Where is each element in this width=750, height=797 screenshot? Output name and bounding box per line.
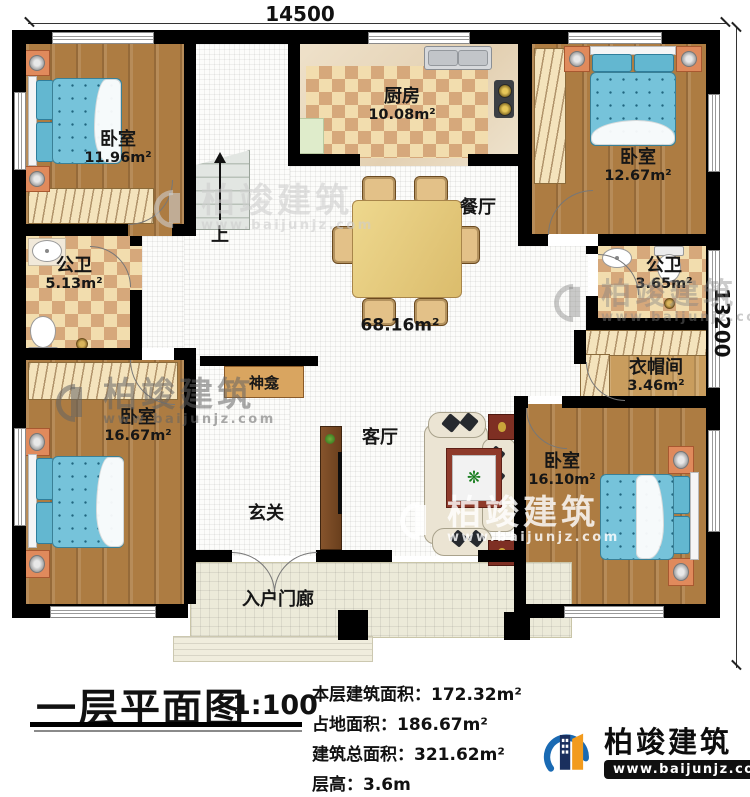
bed-tr-pillow: [634, 54, 674, 72]
dimension-tick: [720, 17, 730, 27]
stat-value: 172.32m²: [431, 685, 522, 705]
stat-line: 建筑总面积：321.62m²: [312, 740, 522, 770]
wall-segment: [574, 330, 586, 364]
wall-segment: [514, 396, 526, 604]
stat-label: 层高：: [312, 775, 363, 795]
bed-bl-sheet: [96, 457, 124, 547]
stat-value: 3.6m: [363, 775, 411, 795]
nightstand: [24, 166, 50, 192]
coffee-table: ❋: [446, 448, 502, 508]
side-table: [488, 414, 516, 440]
nightstand: [24, 50, 50, 76]
stove-burner: [498, 102, 512, 116]
wall-segment: [562, 396, 706, 408]
wall-segment: [532, 234, 548, 246]
wall-segment: [130, 290, 142, 360]
floor-drain: [664, 298, 675, 309]
wall-segment: [26, 348, 130, 360]
cloakroom-shelves-top: [580, 330, 708, 356]
wall-segment: [172, 224, 196, 236]
dimension-line-top: [28, 23, 726, 24]
window: [14, 92, 26, 170]
kitchen-sink: [424, 46, 492, 70]
nightstand: [24, 550, 50, 578]
wall-segment: [518, 44, 532, 246]
window: [568, 32, 662, 44]
stat-label: 占地面积：: [312, 715, 397, 735]
stove-burner: [498, 84, 512, 98]
stat-value: 186.67m²: [397, 715, 488, 735]
partition-plant: [325, 434, 335, 444]
plant-icon: ❋: [467, 468, 481, 488]
room-label-bath-right: 公卫 3.65m²: [635, 256, 692, 292]
wall-segment: [184, 44, 196, 236]
wall-segment: [598, 234, 706, 246]
drawing-scale: 1:100: [232, 690, 318, 721]
room-label-cloakroom: 衣帽间 3.46m²: [627, 358, 684, 394]
wall-segment: [26, 224, 128, 236]
wall-segment: [316, 550, 392, 562]
wall-segment: [288, 154, 360, 166]
bed-br-headboard: [690, 472, 699, 560]
stat-line: 层高：3.6m: [312, 770, 522, 797]
room-label-dining: 餐厅: [460, 198, 496, 218]
window: [564, 606, 664, 618]
stat-line: 本层建筑面积：172.32m²: [312, 680, 522, 710]
window: [52, 32, 154, 44]
room-label-bedroom-bl: 卧室 16.67m²: [104, 408, 171, 444]
brand-logo-icon: [538, 726, 596, 780]
brand-logo: 柏竣建筑 www.baijunjz.com: [538, 726, 750, 780]
entry-door-arc-right: [274, 552, 317, 593]
stairs-arrow-head: [214, 152, 226, 163]
room-label-bath-left: 公卫 5.13m²: [45, 256, 102, 292]
room-label-living: 客厅: [362, 428, 398, 448]
tv-screen: [338, 452, 342, 514]
hall-area-label: 68.16m²: [361, 316, 440, 335]
nightstand: [676, 46, 702, 72]
dimension-tick: [24, 17, 34, 27]
room-label-porch: 入户门廊: [242, 590, 314, 610]
porch-column: [338, 610, 368, 640]
dimension-right-value: 13200: [710, 288, 734, 352]
shrine-label: 神龛: [249, 372, 279, 393]
stat-value: 321.62m²: [414, 745, 505, 765]
window: [708, 94, 720, 172]
nightstand: [564, 46, 590, 72]
room-label-bedroom-tr: 卧室 12.67m²: [604, 148, 671, 184]
title-block: 一层平面图 1:100 本层建筑面积：172.32m² 占地面积：186.67m…: [0, 668, 750, 797]
stats-list: 本层建筑面积：172.32m² 占地面积：186.67m² 建筑总面积：321.…: [312, 680, 522, 797]
brand-url: www.baijunjz.com: [604, 760, 750, 779]
wall-segment: [184, 348, 196, 604]
entry-door-arc-left: [232, 552, 275, 593]
wall-segment: [586, 246, 598, 254]
room-label-entry: 玄关: [248, 504, 284, 524]
room-label-bedroom-br: 卧室 16.10m²: [528, 452, 595, 488]
stair-hall-floor: [184, 44, 290, 556]
wall-segment: [288, 44, 300, 166]
nightstand: [668, 558, 694, 586]
window: [14, 428, 26, 526]
bed-br-sheet: [636, 475, 664, 559]
brand-name: 柏竣建筑: [604, 728, 750, 757]
stat-label: 本层建筑面积：: [312, 685, 431, 705]
stairs-up-label: 上: [211, 226, 229, 246]
window: [50, 606, 156, 618]
room-label-kitchen: 厨房 10.08m²: [368, 87, 435, 123]
title-underline-thin: [34, 730, 302, 732]
dimension-line-right: [736, 28, 737, 668]
title-underline: [30, 722, 302, 727]
nightstand: [668, 446, 694, 474]
wall-segment: [130, 236, 142, 246]
bed-tr-pillow: [592, 54, 632, 72]
room-label-bedroom-tl: 卧室 11.96m²: [84, 130, 151, 166]
dimension-top-value: 14500: [250, 2, 350, 26]
wardrobe-bedroom-tr: [534, 48, 566, 184]
plan-area: 神龛 ❋: [0, 0, 750, 668]
shrine-back-wall: [200, 356, 318, 366]
wall-segment: [586, 318, 706, 330]
dining-table: [352, 200, 462, 298]
shrine-cabinet: 神龛: [224, 366, 304, 398]
stairs-arrow-line: [219, 162, 221, 220]
window: [708, 430, 720, 532]
stat-label: 建筑总面积：: [312, 745, 414, 765]
bed-br-pillow: [672, 516, 690, 554]
window: [368, 32, 470, 44]
nightstand: [24, 428, 50, 456]
stat-line: 占地面积：186.67m²: [312, 710, 522, 740]
bed-br-pillow: [672, 476, 690, 514]
hall-west-floor: [142, 236, 184, 348]
floor-plan-page: 神龛 ❋: [0, 0, 750, 797]
porch-column: [504, 612, 530, 640]
